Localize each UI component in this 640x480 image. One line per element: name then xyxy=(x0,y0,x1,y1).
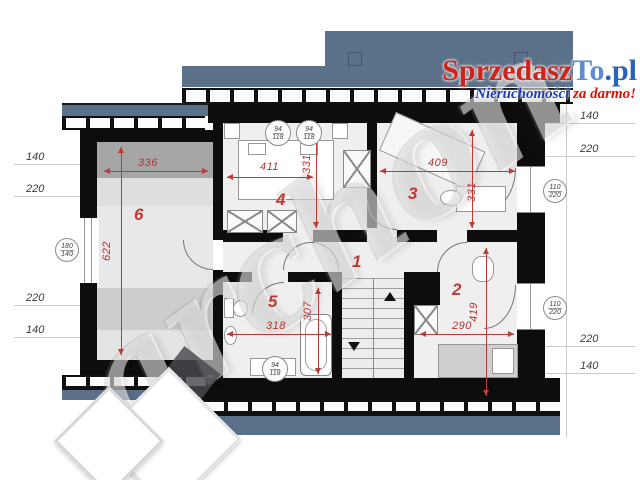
wall-left-upper xyxy=(80,142,97,218)
dim-line-622 xyxy=(121,147,122,355)
door-size-circle-right-lower: 110 220 xyxy=(543,296,567,320)
roof-window-circle: 94 118 xyxy=(262,356,288,382)
door-width: 110 xyxy=(548,184,561,192)
wall-right-1 xyxy=(517,104,545,166)
door-width: 110 xyxy=(548,301,561,309)
window-size-circle-left: 180 140 xyxy=(55,238,79,262)
roof-strip-top-left xyxy=(62,103,213,116)
extension-line xyxy=(545,156,635,157)
wall-hall-north-c xyxy=(397,230,437,242)
balcony-door-opening-upper xyxy=(517,166,545,213)
room-3-label: 3 xyxy=(408,184,417,204)
dim-331-room4: 331 xyxy=(301,154,313,174)
dim-411: 411 xyxy=(260,161,279,173)
staircase-divider-line xyxy=(373,278,374,378)
dim-419: 419 xyxy=(468,302,480,322)
dim-line-331-room4 xyxy=(316,130,317,228)
door-size-circle-right-upper: 110 220 xyxy=(543,179,567,203)
extension-line xyxy=(545,346,635,347)
wall-bottom-main xyxy=(182,378,560,400)
dim-line-307 xyxy=(318,288,319,374)
logo-text-pl: .pl xyxy=(604,54,637,87)
nightstand xyxy=(224,123,240,139)
roof-window-height: 118 xyxy=(303,134,314,141)
wall-top xyxy=(208,104,560,123)
door-height: 220 xyxy=(549,309,561,316)
dim-409: 409 xyxy=(428,157,448,169)
wardrobe-room3 xyxy=(343,150,371,188)
side-dim-right-2: 220 xyxy=(580,333,598,345)
dim-line-336 xyxy=(104,171,208,172)
nightstand xyxy=(332,123,348,139)
wall-room6-divider-lower xyxy=(213,270,223,378)
roof-window-circle: 94 118 xyxy=(296,120,322,146)
dim-307: 307 xyxy=(302,301,314,321)
dim-336: 336 xyxy=(138,157,158,169)
extension-line xyxy=(14,164,80,165)
balcony-door-opening-lower xyxy=(517,283,545,330)
room-4-label: 4 xyxy=(276,190,285,210)
desk-room3 xyxy=(456,186,506,212)
wall-right-2 xyxy=(517,213,545,283)
room-2-label: 2 xyxy=(452,280,461,300)
bathtub-inner xyxy=(305,319,327,371)
site-logo-tagline: Nieruchomości za darmo! xyxy=(442,86,640,103)
wall-stairs-room2 xyxy=(404,272,414,378)
side-dim-left-1: 220 xyxy=(26,183,44,195)
wardrobe-room4 xyxy=(227,210,263,233)
side-dim-left-2: 220 xyxy=(26,292,44,304)
dimension-chain-line xyxy=(566,104,567,437)
extension-line xyxy=(14,337,80,338)
pillow-room2 xyxy=(492,348,514,374)
extension-line xyxy=(14,305,80,306)
wall-room6-top xyxy=(80,130,213,142)
roof-window-circle: 94 118 xyxy=(265,120,291,146)
wardrobe-room4-b xyxy=(267,210,297,233)
tagline-text-blue: Nieruchomości xyxy=(475,86,573,102)
wall-hall-north-d xyxy=(467,230,517,242)
dim-line-290 xyxy=(420,334,514,335)
side-dim-right-1: 220 xyxy=(580,143,598,155)
side-dim-left-0: 140 xyxy=(26,151,44,163)
roof-window-height: 118 xyxy=(272,134,283,141)
stairs-up-arrow-icon xyxy=(384,292,396,301)
site-logo-title: SprzedaszTo.pl xyxy=(442,56,640,86)
dim-331-room3: 331 xyxy=(466,182,478,202)
floor-plan-page: 94 118 94 118 94 118 180 140 110 220 110… xyxy=(0,0,640,480)
dim-622: 622 xyxy=(101,241,113,261)
dim-318: 318 xyxy=(266,320,286,332)
window-left xyxy=(78,218,99,283)
side-dim-left-3: 140 xyxy=(26,324,44,336)
room-1-label: 1 xyxy=(352,252,361,272)
dim-line-331-room3 xyxy=(472,130,473,228)
knee-wall-hatch-top-left xyxy=(62,116,205,130)
dim-line-409 xyxy=(380,171,515,172)
room-6-label: 6 xyxy=(134,205,143,225)
extension-line xyxy=(14,196,80,197)
window-width: 180 xyxy=(60,243,74,251)
roof-chimney-marker xyxy=(348,52,362,66)
tagline-text-red: za darmo! xyxy=(573,86,636,102)
wall-bath-stairs xyxy=(332,272,342,378)
toilet-bowl xyxy=(233,300,248,317)
window-height: 140 xyxy=(61,251,73,258)
chair-room3 xyxy=(440,190,462,206)
roof-strip-bottom xyxy=(182,413,560,435)
roof-window-width: 94 xyxy=(270,362,280,370)
side-dim-right-0: 140 xyxy=(580,110,598,122)
logo-text-to: To xyxy=(572,54,604,87)
dim-line-419 xyxy=(486,248,487,396)
roof-window-height: 118 xyxy=(269,370,280,377)
roof-window-width: 94 xyxy=(304,126,314,134)
extension-line xyxy=(545,123,635,124)
roof-window-width: 94 xyxy=(273,126,283,134)
extension-line xyxy=(545,373,635,374)
wall-chimney-block xyxy=(414,272,440,305)
wall-hall-north-b xyxy=(313,230,367,242)
dim-line-318 xyxy=(227,334,331,335)
door-height: 220 xyxy=(549,192,561,199)
wall-hall-south-a xyxy=(223,272,252,282)
pillow xyxy=(248,143,266,155)
site-logo: SprzedaszTo.pl Nieruchomości za darmo! xyxy=(442,56,640,103)
room-5-label: 5 xyxy=(268,292,277,312)
wall-room6-divider-upper xyxy=(213,123,223,240)
stairs-down-arrow-icon xyxy=(348,342,360,351)
logo-text-red: Sprzedasz xyxy=(442,54,572,87)
washbasin-room2 xyxy=(472,256,494,282)
dim-line-411 xyxy=(227,177,313,178)
knee-wall-hatch-bottom xyxy=(200,400,560,413)
side-dim-right-3: 140 xyxy=(580,360,598,372)
wardrobe-room2 xyxy=(414,305,438,335)
